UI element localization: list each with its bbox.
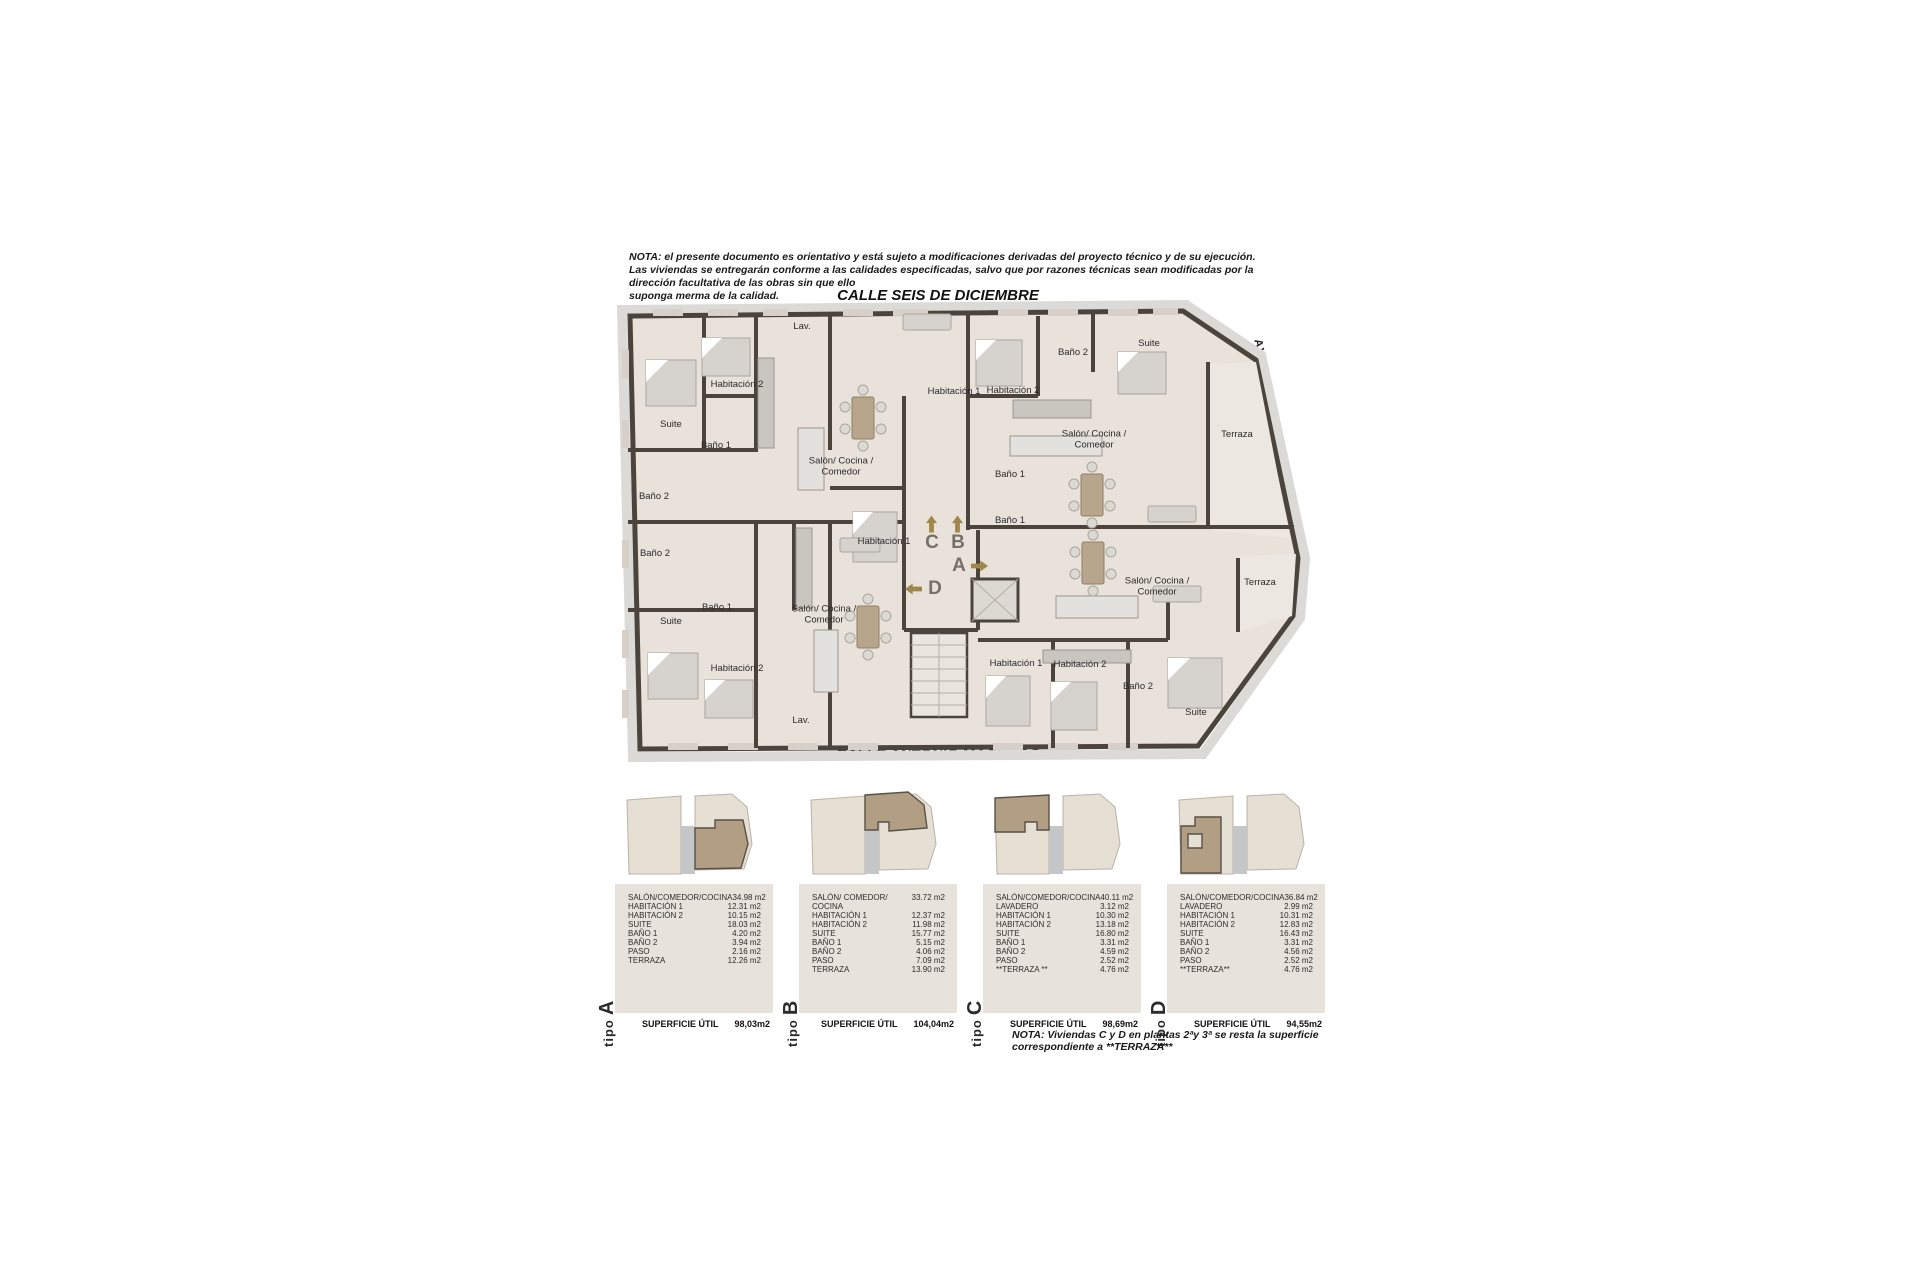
row-label: HABITACIÓN 2: [812, 920, 867, 929]
table-row: PASO7.09 m2: [812, 956, 945, 965]
row-label: **TERRAZA **: [996, 965, 1048, 974]
superficie-value: 98,03m2: [734, 1019, 770, 1029]
row-label: LAVADERO: [996, 902, 1038, 911]
unit-total-row: SUPERFICIE ÚTIL 104,04m2: [799, 1019, 957, 1029]
room-label: Suite: [1138, 339, 1160, 350]
table-row: SUITE15.77 m2: [812, 929, 945, 938]
row-label: PASO: [628, 947, 650, 956]
table-row: HABITACIÓN 211.98 m2: [812, 920, 945, 929]
row-label: PASO: [812, 956, 834, 965]
main-floor-plan: Lav.Habitación 2Habitación 1Habitación 2…: [608, 300, 1318, 770]
table-row: PASO2.52 m2: [1180, 956, 1313, 965]
unit-panel-b: tipoB SALÓN/ COMEDOR/ COCINA33.72 m2HABI…: [799, 884, 957, 1029]
row-label: PASO: [1180, 956, 1202, 965]
row-value: 13.18 m2: [1096, 920, 1129, 929]
row-label: SALÓN/ COMEDOR/ COCINA: [812, 893, 912, 911]
room-label: Suite: [1185, 708, 1207, 719]
row-value: 33.72 m2: [912, 893, 945, 911]
entrance-letter: C: [925, 532, 939, 554]
unit-total-row: SUPERFICIE ÚTIL 94,55m2: [1167, 1019, 1325, 1029]
table-row: SALÓN/ COMEDOR/ COCINA33.72 m2: [812, 893, 945, 911]
table-row: HABITACIÓN 112.31 m2: [628, 902, 761, 911]
room-label: Habitación 2: [1054, 660, 1107, 671]
row-value: 10.15 m2: [728, 911, 761, 920]
room-label: Baño 1: [702, 603, 732, 614]
table-row: **TERRAZA**4.76 m2: [1180, 965, 1313, 974]
table-row: HABITACIÓN 110.30 m2: [996, 911, 1129, 920]
table-row: BAÑO 24.56 m2: [1180, 947, 1313, 956]
table-row: **TERRAZA **4.76 m2: [996, 965, 1129, 974]
row-label: SALÓN/COMEDOR/COCINA: [1180, 893, 1284, 902]
room-label: Salón/ Cocina / Comedor: [1125, 577, 1189, 598]
row-value: 4.06 m2: [916, 947, 945, 956]
row-label: **TERRAZA**: [1180, 965, 1230, 974]
row-label: BAÑO 1: [996, 938, 1025, 947]
superficie-label: SUPERFICIE ÚTIL: [1194, 1019, 1271, 1029]
row-label: HABITACIÓN 1: [1180, 911, 1235, 920]
room-label: Salón/ Cocina / Comedor: [1062, 430, 1126, 451]
room-label: Habitación 1: [990, 659, 1043, 670]
table-row: HABITACIÓN 110.31 m2: [1180, 911, 1313, 920]
unit-surface-table: SALÓN/COMEDOR/COCINA34.98 m2HABITACIÓN 1…: [615, 884, 773, 1013]
row-value: 2.99 m2: [1284, 902, 1313, 911]
row-label: HABITACIÓN 1: [812, 911, 867, 920]
table-row: BAÑO 13.31 m2: [1180, 938, 1313, 947]
row-label: HABITACIÓN 2: [1180, 920, 1235, 929]
room-label: Baño 1: [995, 470, 1025, 481]
table-row: HABITACIÓN 213.18 m2: [996, 920, 1129, 929]
row-value: 2.52 m2: [1284, 956, 1313, 965]
table-row: LAVADERO3.12 m2: [996, 902, 1129, 911]
room-label: Baño 1: [995, 516, 1025, 527]
table-row: BAÑO 24.59 m2: [996, 947, 1129, 956]
row-value: 10.31 m2: [1280, 911, 1313, 920]
row-label: HABITACIÓN 1: [628, 902, 683, 911]
table-row: BAÑO 14.20 m2: [628, 929, 761, 938]
unit-total-row: SUPERFICIE ÚTIL 98,03m2: [615, 1019, 773, 1029]
table-row: SUITE16.43 m2: [1180, 929, 1313, 938]
superficie-value: 104,04m2: [913, 1019, 954, 1029]
row-label: LAVADERO: [1180, 902, 1222, 911]
row-label: PASO: [996, 956, 1018, 965]
row-value: 4.59 m2: [1100, 947, 1129, 956]
room-label: Baño 1: [701, 441, 731, 452]
row-value: 4.20 m2: [732, 929, 761, 938]
row-label: BAÑO 2: [628, 938, 657, 947]
unit-surface-table: SALÓN/COMEDOR/COCINA36.84 m2LAVADERO2.99…: [1167, 884, 1325, 1013]
row-value: 5.15 m2: [916, 938, 945, 947]
table-row: PASO2.52 m2: [996, 956, 1129, 965]
row-label: BAÑO 1: [1180, 938, 1209, 947]
unit-surface-table: SALÓN/COMEDOR/COCINA40.11 m2LAVADERO3.12…: [983, 884, 1141, 1013]
row-value: 11.98 m2: [912, 920, 945, 929]
row-label: BAÑO 1: [812, 938, 841, 947]
row-label: SUITE: [996, 929, 1020, 938]
table-row: BAÑO 24.06 m2: [812, 947, 945, 956]
room-label: Baño 2: [1123, 682, 1153, 693]
row-label: SALÓN/COMEDOR/COCINA: [628, 893, 732, 902]
row-label: SUITE: [812, 929, 836, 938]
superficie-label: SUPERFICIE ÚTIL: [642, 1019, 719, 1029]
room-label: Suite: [660, 617, 682, 628]
table-row: SUITE18.03 m2: [628, 920, 761, 929]
row-value: 2.16 m2: [732, 947, 761, 956]
row-label: SUITE: [1180, 929, 1204, 938]
room-label: Lav.: [793, 322, 810, 333]
table-row: SALÓN/COMEDOR/COCINA40.11 m2: [996, 893, 1129, 902]
room-label: Habitación 2: [711, 380, 764, 391]
note-bottom: NOTA: Viviendas C y D en plantas 2ªy 3ª …: [1012, 1029, 1352, 1053]
table-row: BAÑO 23.94 m2: [628, 938, 761, 947]
room-label: Baño 2: [640, 549, 670, 560]
superficie-value: 98,69m2: [1102, 1019, 1138, 1029]
room-label: Terraza: [1244, 578, 1276, 589]
row-value: 4.76 m2: [1284, 965, 1313, 974]
row-value: 7.09 m2: [916, 956, 945, 965]
row-value: 40.11 m2: [1100, 893, 1133, 902]
row-value: 12.31 m2: [728, 902, 761, 911]
room-label: Lav.: [792, 716, 809, 727]
row-label: BAÑO 2: [812, 947, 841, 956]
row-value: 2.52 m2: [1100, 956, 1129, 965]
table-row: TERRAZA13.90 m2: [812, 965, 945, 974]
table-row: HABITACIÓN 112.37 m2: [812, 911, 945, 920]
unit-total-row: SUPERFICIE ÚTIL 98,69m2: [983, 1019, 1141, 1029]
row-label: SUITE: [628, 920, 652, 929]
room-label: Salón/ Cocina / Comedor: [809, 457, 873, 478]
row-value: 10.30 m2: [1096, 911, 1129, 920]
entrance-marker-b: B: [948, 533, 968, 553]
row-value: 3.31 m2: [1284, 938, 1313, 947]
table-row: PASO2.16 m2: [628, 947, 761, 956]
table-row: HABITACIÓN 212.83 m2: [1180, 920, 1313, 929]
entrance-marker-d: D: [925, 579, 945, 599]
row-label: HABITACIÓN 1: [996, 911, 1051, 920]
unit-panel-d: tipoD SALÓN/COMEDOR/COCINA36.84 m2LAVADE…: [1167, 884, 1325, 1029]
row-value: 34.98 m2: [732, 893, 765, 902]
table-row: HABITACIÓN 210.15 m2: [628, 911, 761, 920]
row-value: 16.80 m2: [1096, 929, 1129, 938]
row-value: 18.03 m2: [728, 920, 761, 929]
row-value: 13.90 m2: [912, 965, 945, 974]
row-value: 3.12 m2: [1100, 902, 1129, 911]
room-label: Baño 2: [639, 492, 669, 503]
unit-type-label: tipoC: [964, 1001, 987, 1047]
superficie-label: SUPERFICIE ÚTIL: [1010, 1019, 1087, 1029]
entrance-marker-c: C: [922, 533, 942, 553]
row-value: 12.83 m2: [1280, 920, 1313, 929]
row-value: 4.76 m2: [1100, 965, 1129, 974]
unit-panel-a: tipoA SALÓN/COMEDOR/COCINA34.98 m2HABITA…: [615, 884, 773, 1029]
superficie-label: SUPERFICIE ÚTIL: [821, 1019, 898, 1029]
unit-panel-c: tipoC SALÓN/COMEDOR/COCINA40.11 m2LAVADE…: [983, 884, 1141, 1029]
row-value: 3.31 m2: [1100, 938, 1129, 947]
unit-minimap-a: [619, 786, 769, 880]
superficie-value: 94,55m2: [1286, 1019, 1322, 1029]
unit-type-label: tipoB: [780, 1001, 803, 1047]
room-label: Habitación 2: [711, 664, 764, 675]
entrance-letter: B: [951, 532, 965, 554]
row-label: HABITACIÓN 2: [996, 920, 1051, 929]
row-value: 3.94 m2: [732, 938, 761, 947]
row-label: BAÑO 2: [996, 947, 1025, 956]
table-row: LAVADERO2.99 m2: [1180, 902, 1313, 911]
row-label: BAÑO 2: [1180, 947, 1209, 956]
unit-minimap-b: [803, 786, 953, 880]
table-row: TERRAZA12.26 m2: [628, 956, 761, 965]
entrance-marker-a: A: [949, 556, 969, 576]
room-label: Habitación 1: [858, 537, 911, 548]
unit-type-label: tipoA: [596, 1001, 619, 1047]
row-label: TERRAZA: [628, 956, 665, 965]
room-label: Baño 2: [1058, 348, 1088, 359]
table-row: SUITE16.80 m2: [996, 929, 1129, 938]
room-label: Habitación 1: [928, 387, 981, 398]
row-value: 4.56 m2: [1284, 947, 1313, 956]
room-label: Salón/ Cocina / Comedor: [792, 605, 856, 626]
row-value: 16.43 m2: [1280, 929, 1313, 938]
unit-minimap-c: [987, 786, 1137, 880]
row-value: 12.26 m2: [728, 956, 761, 965]
row-label: BAÑO 1: [628, 929, 657, 938]
row-value: 15.77 m2: [912, 929, 945, 938]
unit-surface-table: SALÓN/ COMEDOR/ COCINA33.72 m2HABITACIÓN…: [799, 884, 957, 1013]
entrance-letter: A: [952, 555, 966, 577]
table-row: SALÓN/COMEDOR/COCINA36.84 m2: [1180, 893, 1313, 902]
table-row: BAÑO 13.31 m2: [996, 938, 1129, 947]
row-label: SALÓN/COMEDOR/COCINA: [996, 893, 1100, 902]
table-row: SALÓN/COMEDOR/COCINA34.98 m2: [628, 893, 761, 902]
table-row: BAÑO 15.15 m2: [812, 938, 945, 947]
row-value: 12.37 m2: [912, 911, 945, 920]
unit-minimap-d: [1171, 786, 1321, 880]
room-label: Habitación 2: [987, 386, 1040, 397]
row-value: 36.84 m2: [1284, 893, 1317, 902]
floorplan-sheet: NOTA: el presente documento es orientati…: [0, 0, 1920, 1280]
entrance-letter: D: [928, 578, 942, 600]
room-label: Suite: [660, 420, 682, 431]
row-label: HABITACIÓN 2: [628, 911, 683, 920]
row-label: TERRAZA: [812, 965, 849, 974]
room-label: Terraza: [1221, 430, 1253, 441]
